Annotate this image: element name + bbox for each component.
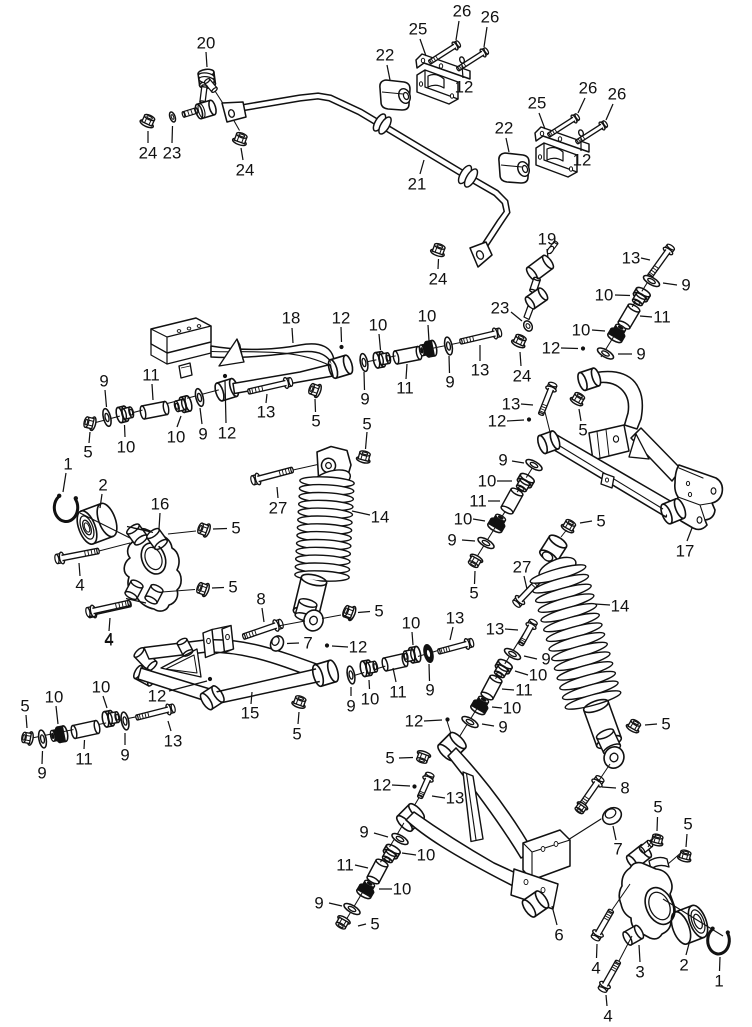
svg-text:10: 10 <box>418 307 437 326</box>
svg-text:9: 9 <box>198 425 207 444</box>
svg-text:5: 5 <box>228 578 237 597</box>
svg-text:5: 5 <box>20 697 29 716</box>
svg-text:5: 5 <box>596 512 605 531</box>
svg-text:10: 10 <box>478 472 497 491</box>
svg-text:27: 27 <box>513 558 532 577</box>
svg-text:12: 12 <box>148 687 167 706</box>
svg-text:10: 10 <box>393 880 412 899</box>
svg-text:13: 13 <box>164 732 183 751</box>
svg-text:25: 25 <box>528 94 547 113</box>
svg-text:10: 10 <box>167 428 186 447</box>
svg-text:10: 10 <box>454 510 473 529</box>
svg-text:12: 12 <box>332 309 351 328</box>
svg-text:6: 6 <box>554 926 563 945</box>
svg-text:17: 17 <box>676 542 695 561</box>
svg-text:13: 13 <box>257 403 276 422</box>
svg-text:11: 11 <box>653 308 670 327</box>
svg-text:5: 5 <box>311 412 320 431</box>
svg-text:4: 4 <box>603 1007 612 1026</box>
svg-text:9: 9 <box>498 451 507 470</box>
svg-text:11: 11 <box>75 750 92 769</box>
svg-text:11: 11 <box>389 683 406 702</box>
svg-text:9: 9 <box>447 531 456 550</box>
svg-text:5: 5 <box>362 415 371 434</box>
svg-text:9: 9 <box>314 894 323 913</box>
svg-text:4: 4 <box>75 576 84 595</box>
svg-text:10: 10 <box>92 678 111 697</box>
svg-text:5: 5 <box>653 798 662 817</box>
svg-text:5: 5 <box>370 915 379 934</box>
svg-text:7: 7 <box>613 840 622 859</box>
svg-text:12: 12 <box>218 424 237 443</box>
svg-text:2: 2 <box>679 956 688 975</box>
svg-text:26: 26 <box>481 8 500 27</box>
svg-text:4: 4 <box>591 959 600 978</box>
svg-text:9: 9 <box>346 697 355 716</box>
svg-text:14: 14 <box>611 597 630 616</box>
svg-text:12: 12 <box>373 776 392 795</box>
svg-text:5: 5 <box>292 725 301 744</box>
svg-text:27: 27 <box>269 499 288 518</box>
svg-text:9: 9 <box>498 718 507 737</box>
svg-text:5: 5 <box>578 421 587 440</box>
svg-text:26: 26 <box>579 79 598 98</box>
svg-text:12: 12 <box>455 78 474 97</box>
svg-text:5: 5 <box>683 815 692 834</box>
svg-text:12: 12 <box>488 412 507 431</box>
svg-text:13: 13 <box>446 789 465 808</box>
svg-text:10: 10 <box>361 690 380 709</box>
svg-text:24: 24 <box>429 270 448 289</box>
svg-text:10: 10 <box>595 286 614 305</box>
svg-text:4: 4 <box>104 630 113 649</box>
svg-text:12: 12 <box>573 151 592 170</box>
svg-text:13: 13 <box>622 249 641 268</box>
svg-text:21: 21 <box>408 175 427 194</box>
svg-text:7: 7 <box>303 634 312 653</box>
svg-text:19: 19 <box>538 230 557 249</box>
svg-text:9: 9 <box>120 746 129 765</box>
svg-text:23: 23 <box>491 299 510 318</box>
svg-text:9: 9 <box>636 345 645 364</box>
svg-text:9: 9 <box>681 276 690 295</box>
svg-text:24: 24 <box>139 144 158 163</box>
svg-text:16: 16 <box>151 495 170 514</box>
svg-text:2: 2 <box>98 476 107 495</box>
svg-text:9: 9 <box>37 764 46 783</box>
svg-text:9: 9 <box>359 823 368 842</box>
svg-text:12: 12 <box>542 339 561 358</box>
svg-text:9: 9 <box>360 390 369 409</box>
svg-text:3: 3 <box>635 963 644 982</box>
svg-text:8: 8 <box>256 590 265 609</box>
svg-text:23: 23 <box>163 144 182 163</box>
svg-text:26: 26 <box>608 85 627 104</box>
svg-text:9: 9 <box>425 681 434 700</box>
svg-text:25: 25 <box>409 20 428 39</box>
svg-text:18: 18 <box>282 309 301 328</box>
svg-text:11: 11 <box>336 856 353 875</box>
svg-text:5: 5 <box>661 715 670 734</box>
svg-text:15: 15 <box>241 704 260 723</box>
svg-text:11: 11 <box>142 366 159 385</box>
svg-text:1: 1 <box>714 972 723 991</box>
svg-text:24: 24 <box>513 367 532 386</box>
svg-text:10: 10 <box>45 688 64 707</box>
svg-text:10: 10 <box>402 614 421 633</box>
svg-text:10: 10 <box>117 438 136 457</box>
svg-text:5: 5 <box>385 749 394 768</box>
svg-text:26: 26 <box>453 2 472 21</box>
svg-text:9: 9 <box>445 373 454 392</box>
svg-text:5: 5 <box>374 602 383 621</box>
svg-text:22: 22 <box>495 119 514 138</box>
svg-text:9: 9 <box>541 650 550 669</box>
svg-text:5: 5 <box>83 443 92 462</box>
svg-text:22: 22 <box>376 46 395 65</box>
svg-text:5: 5 <box>469 584 478 603</box>
svg-text:1: 1 <box>63 455 72 474</box>
svg-text:11: 11 <box>396 379 413 398</box>
svg-text:9: 9 <box>99 372 108 391</box>
svg-text:8: 8 <box>620 779 629 798</box>
svg-text:10: 10 <box>572 321 591 340</box>
svg-text:10: 10 <box>503 699 522 718</box>
svg-text:13: 13 <box>446 609 465 628</box>
svg-text:24: 24 <box>236 161 255 180</box>
svg-text:10: 10 <box>417 846 436 865</box>
svg-text:13: 13 <box>486 620 505 639</box>
svg-text:12: 12 <box>349 638 368 657</box>
svg-text:5: 5 <box>231 519 240 538</box>
svg-text:13: 13 <box>471 361 490 380</box>
svg-text:14: 14 <box>371 508 390 527</box>
svg-text:10: 10 <box>369 316 388 335</box>
svg-text:11: 11 <box>469 492 486 511</box>
svg-text:12: 12 <box>405 712 424 731</box>
svg-text:20: 20 <box>197 34 216 53</box>
